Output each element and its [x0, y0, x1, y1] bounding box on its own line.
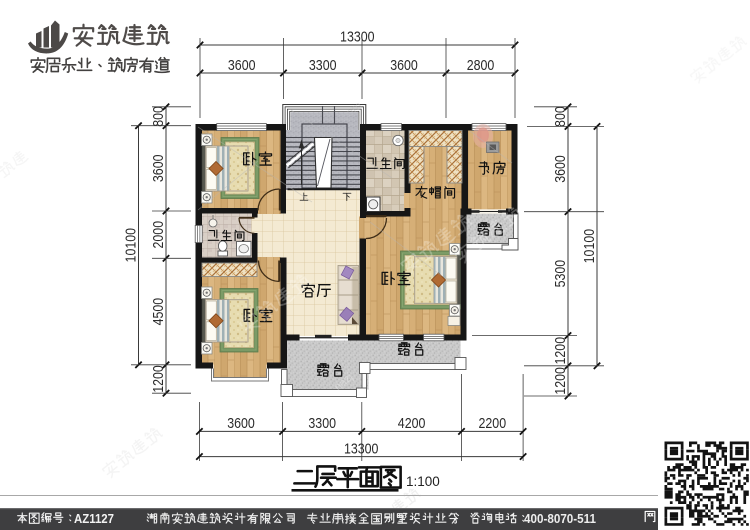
svg-text:13300: 13300	[340, 29, 375, 46]
svg-text:1200: 1200	[552, 337, 569, 365]
svg-text:3600: 3600	[390, 57, 418, 74]
svg-text:1:100: 1:100	[406, 474, 440, 489]
svg-text:3600: 3600	[150, 155, 167, 183]
svg-text:800: 800	[150, 106, 167, 127]
svg-text:3600: 3600	[227, 415, 255, 432]
svg-text:3600: 3600	[228, 57, 256, 74]
svg-text:13300: 13300	[344, 440, 379, 457]
svg-text:800: 800	[552, 106, 569, 127]
svg-text:10100: 10100	[122, 228, 139, 263]
svg-text:2200: 2200	[479, 415, 507, 432]
svg-text:3300: 3300	[309, 57, 337, 74]
svg-text:3300: 3300	[308, 415, 336, 432]
svg-text:400-8070-511: 400-8070-511	[524, 512, 596, 526]
svg-text:AZ1127: AZ1127	[74, 512, 114, 526]
svg-text:3600: 3600	[552, 155, 569, 183]
svg-text:2000: 2000	[150, 221, 167, 249]
svg-text:5300: 5300	[552, 260, 569, 288]
svg-text:4200: 4200	[398, 415, 426, 432]
svg-text:2800: 2800	[467, 57, 495, 74]
svg-text:1200: 1200	[150, 365, 167, 393]
svg-text:1200: 1200	[552, 367, 569, 395]
svg-text:4500: 4500	[150, 298, 167, 326]
svg-text:10100: 10100	[581, 229, 598, 264]
